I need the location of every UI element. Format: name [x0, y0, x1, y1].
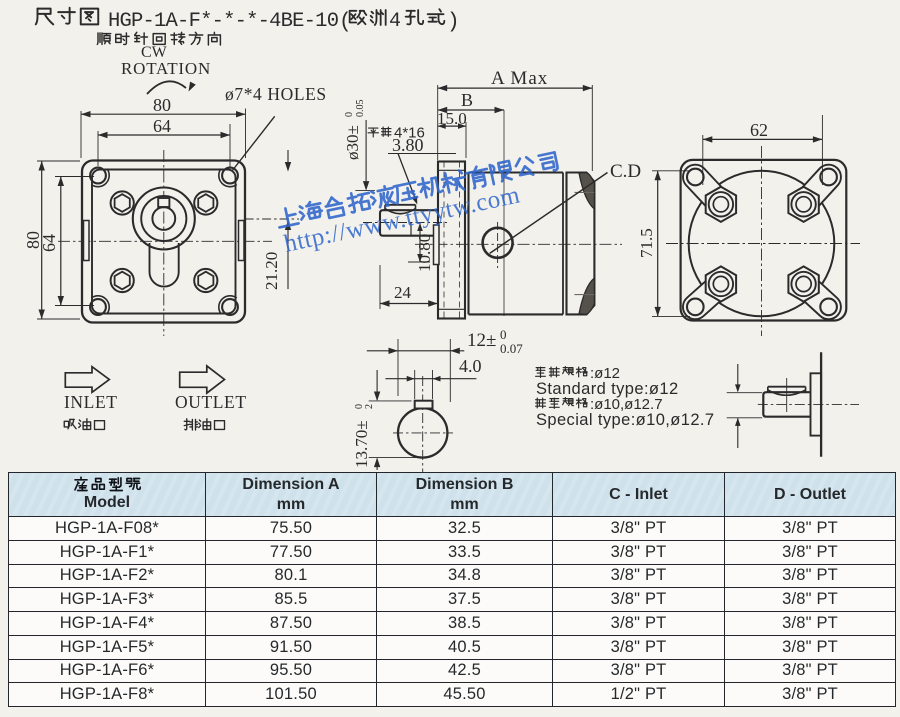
svg-text:0.07: 0.07: [500, 341, 523, 356]
svg-text:64: 64: [153, 116, 171, 136]
svg-text:C.D: C.D: [610, 161, 641, 182]
svg-text:4.0: 4.0: [459, 356, 482, 376]
svg-text:13.70±: 13.70±: [352, 420, 371, 468]
svg-text:4: 4: [389, 10, 401, 33]
svg-text:OUTLET: OUTLET: [175, 392, 247, 412]
svg-text:ø30±: ø30±: [343, 125, 362, 160]
svg-text:B: B: [461, 90, 473, 110]
svg-text:A Max: A Max: [491, 68, 548, 89]
svg-text:24: 24: [394, 283, 412, 302]
svg-text:): ): [447, 11, 460, 34]
svg-text:2: 2: [364, 404, 375, 409]
svg-text:Special type:ø10,ø12.7: Special type:ø10,ø12.7: [536, 411, 714, 429]
svg-text:64: 64: [39, 234, 59, 252]
svg-text:0: 0: [500, 327, 507, 342]
svg-text:3.80: 3.80: [392, 135, 424, 155]
svg-text:HGP-1A-F*-*-*-4BE-10: HGP-1A-F*-*-*-4BE-10: [108, 10, 339, 33]
svg-text:10.80: 10.80: [415, 234, 434, 272]
svg-text:ROTATION: ROTATION: [121, 59, 211, 78]
svg-text:INLET: INLET: [64, 392, 118, 412]
svg-text:12±: 12±: [467, 330, 496, 351]
svg-text:15.0: 15.0: [437, 109, 467, 128]
svg-text:21.20: 21.20: [262, 252, 281, 290]
svg-text:62: 62: [750, 120, 768, 140]
svg-text:0.05: 0.05: [355, 100, 366, 118]
svg-text:ø7*4 HOLES: ø7*4 HOLES: [225, 84, 327, 104]
svg-text:71.5: 71.5: [637, 228, 656, 258]
svg-text:0: 0: [344, 112, 355, 117]
svg-text:80: 80: [153, 95, 171, 115]
